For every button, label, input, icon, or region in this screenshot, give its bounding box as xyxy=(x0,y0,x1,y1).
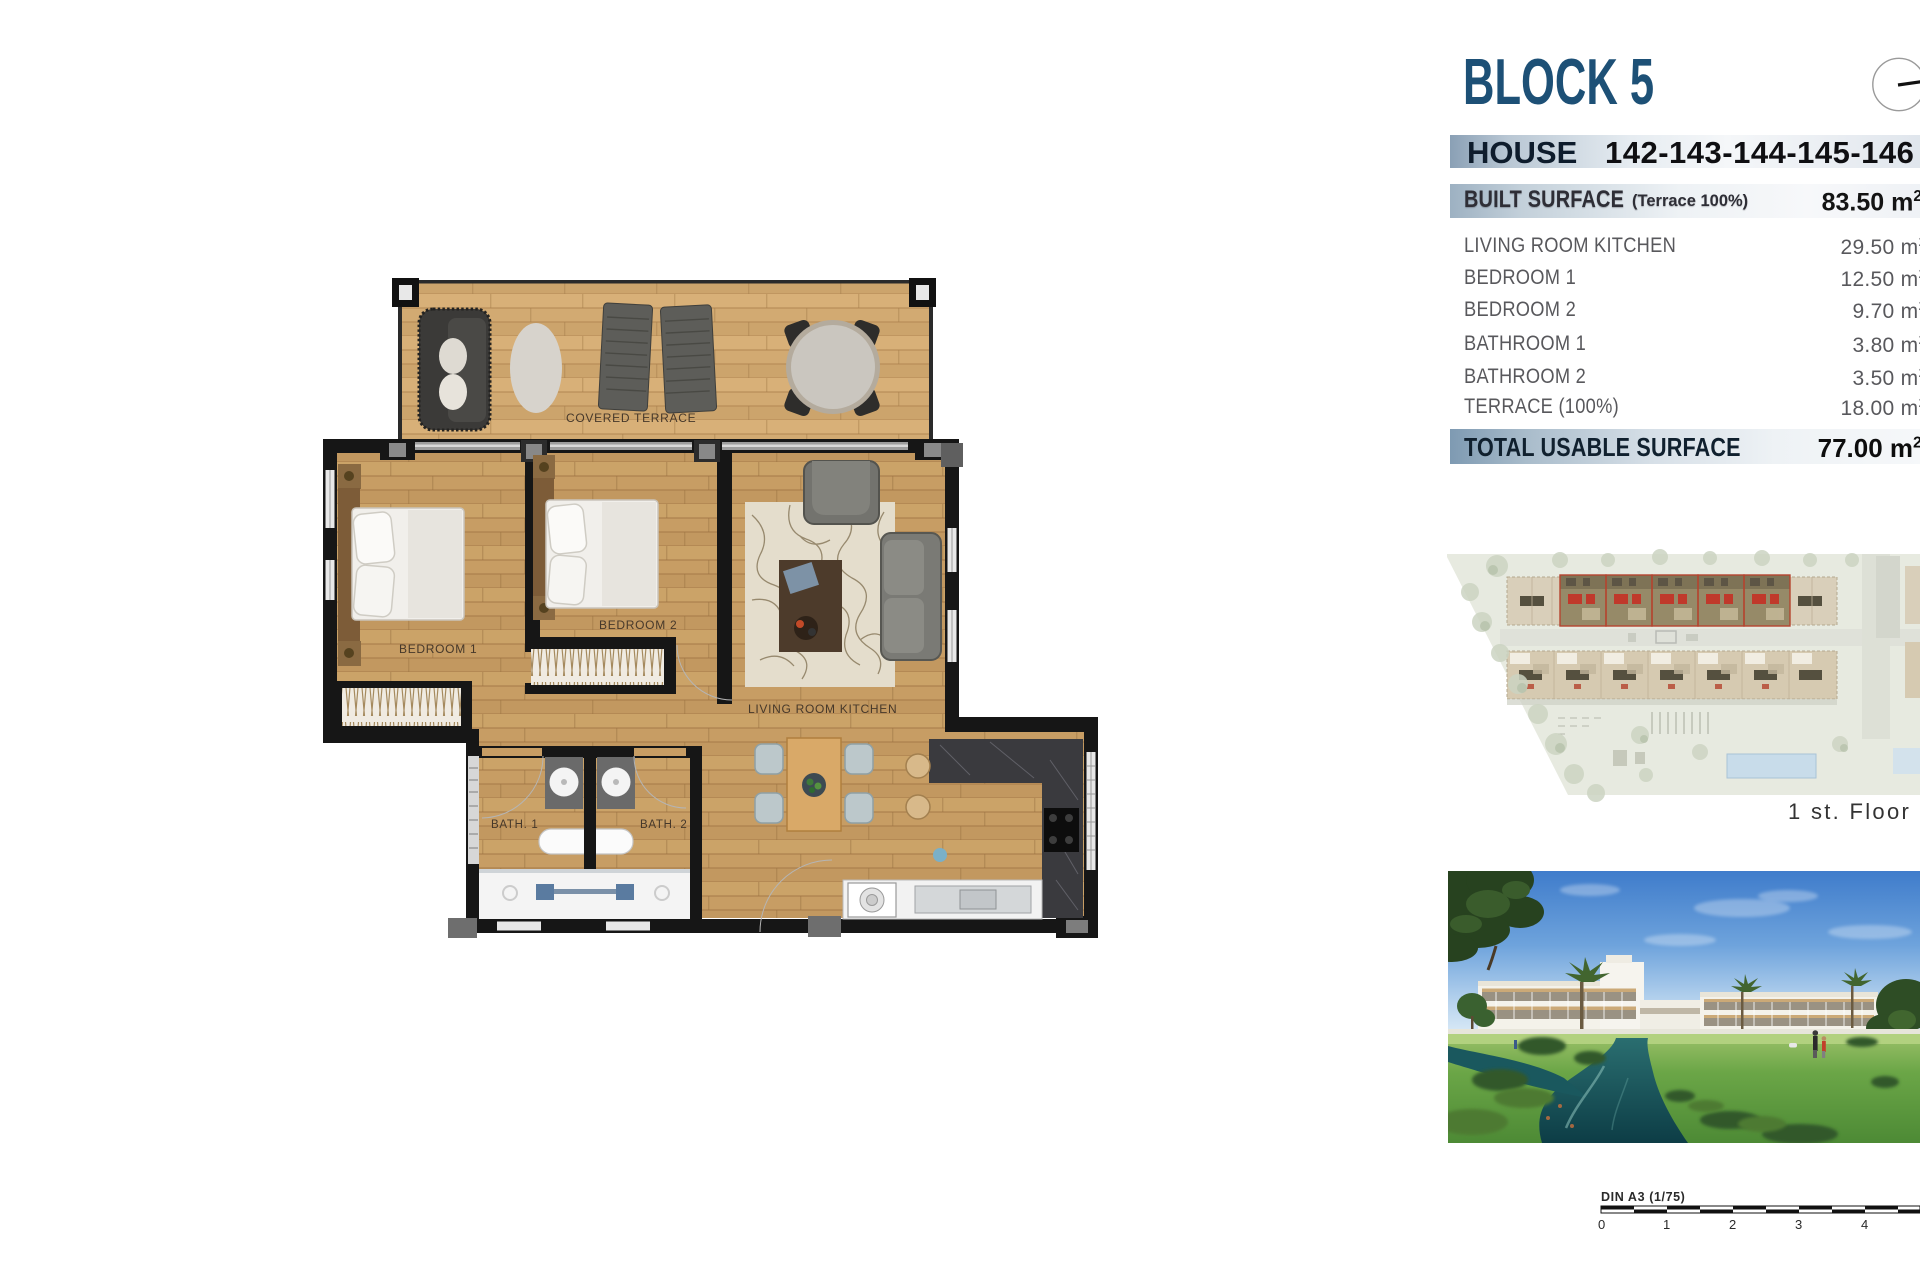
svg-text:3: 3 xyxy=(1795,1217,1802,1232)
svg-text:4: 4 xyxy=(1861,1217,1868,1232)
svg-text:BEDROOM 1: BEDROOM 1 xyxy=(399,642,477,656)
svg-text:BEDROOM 2: BEDROOM 2 xyxy=(599,618,677,632)
svg-text:COVERED TERRACE: COVERED TERRACE xyxy=(566,411,696,425)
svg-text:BATH. 2: BATH. 2 xyxy=(640,819,688,831)
svg-text:BATH. 1: BATH. 1 xyxy=(491,819,539,831)
svg-text:1: 1 xyxy=(1663,1217,1670,1232)
svg-text:2: 2 xyxy=(1729,1217,1736,1232)
svg-text:LIVING ROOM KITCHEN: LIVING ROOM KITCHEN xyxy=(748,702,897,716)
svg-text:0: 0 xyxy=(1598,1217,1605,1232)
